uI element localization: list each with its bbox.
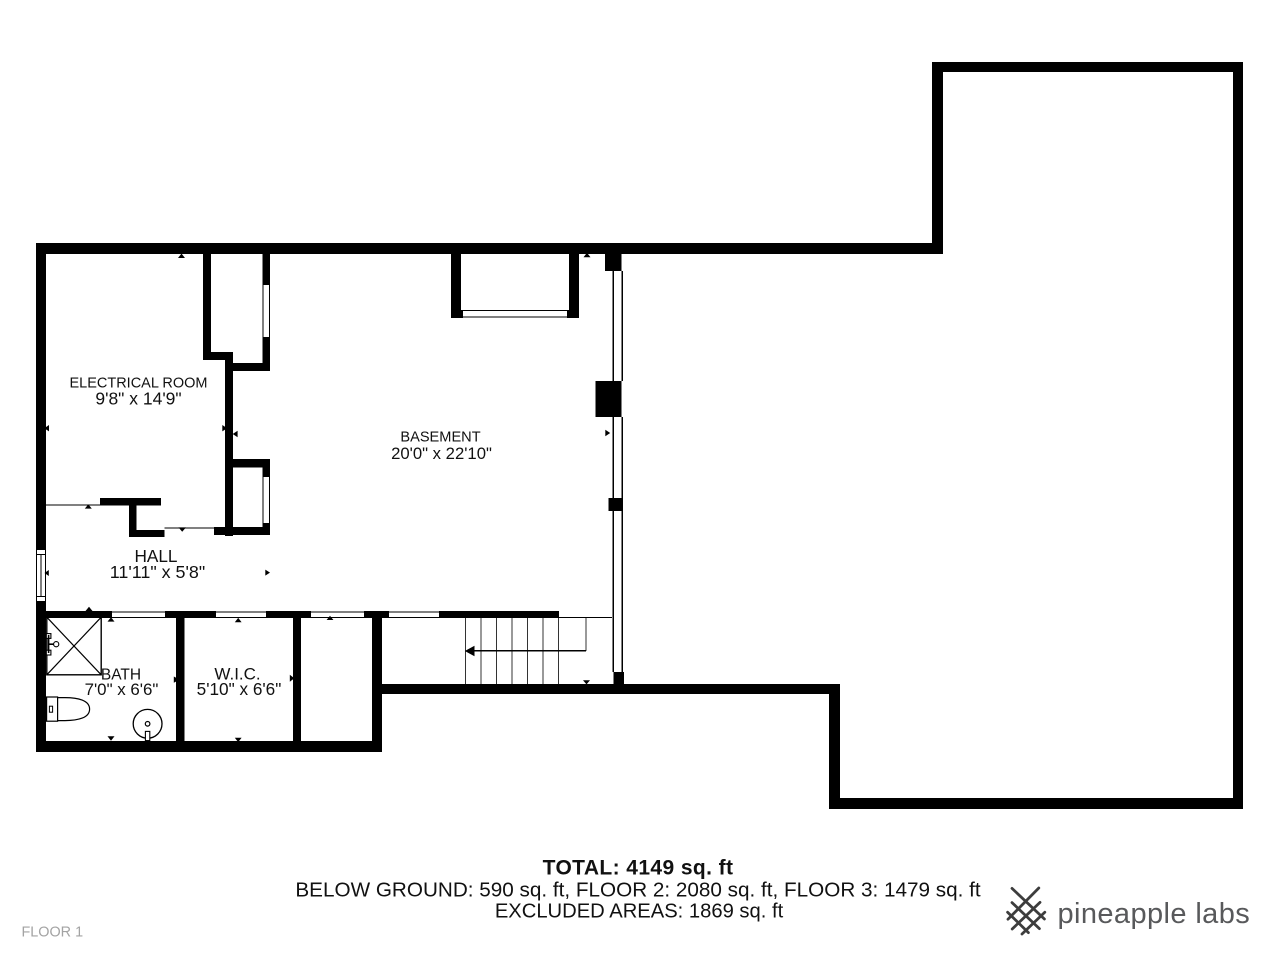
svg-text:5'10" x 6'6": 5'10" x 6'6"	[197, 679, 282, 699]
svg-text:BELOW GROUND: 590 sq. ft, FLOO: BELOW GROUND: 590 sq. ft, FLOOR 2: 2080 …	[295, 879, 980, 902]
svg-text:11'11" x 5'8": 11'11" x 5'8"	[110, 562, 205, 582]
svg-text:pineapple labs: pineapple labs	[1058, 898, 1251, 930]
svg-text:FLOOR 1: FLOOR 1	[22, 925, 84, 941]
svg-text:EXCLUDED AREAS: 1869 sq. ft: EXCLUDED AREAS: 1869 sq. ft	[495, 901, 784, 923]
svg-text:TOTAL: 4149 sq. ft: TOTAL: 4149 sq. ft	[543, 857, 734, 880]
svg-text:9'8" x 14'9": 9'8" x 14'9"	[95, 389, 181, 409]
svg-text:7'0" x 6'6": 7'0" x 6'6"	[85, 680, 159, 699]
svg-text:20'0" x 22'10": 20'0" x 22'10"	[391, 444, 492, 463]
